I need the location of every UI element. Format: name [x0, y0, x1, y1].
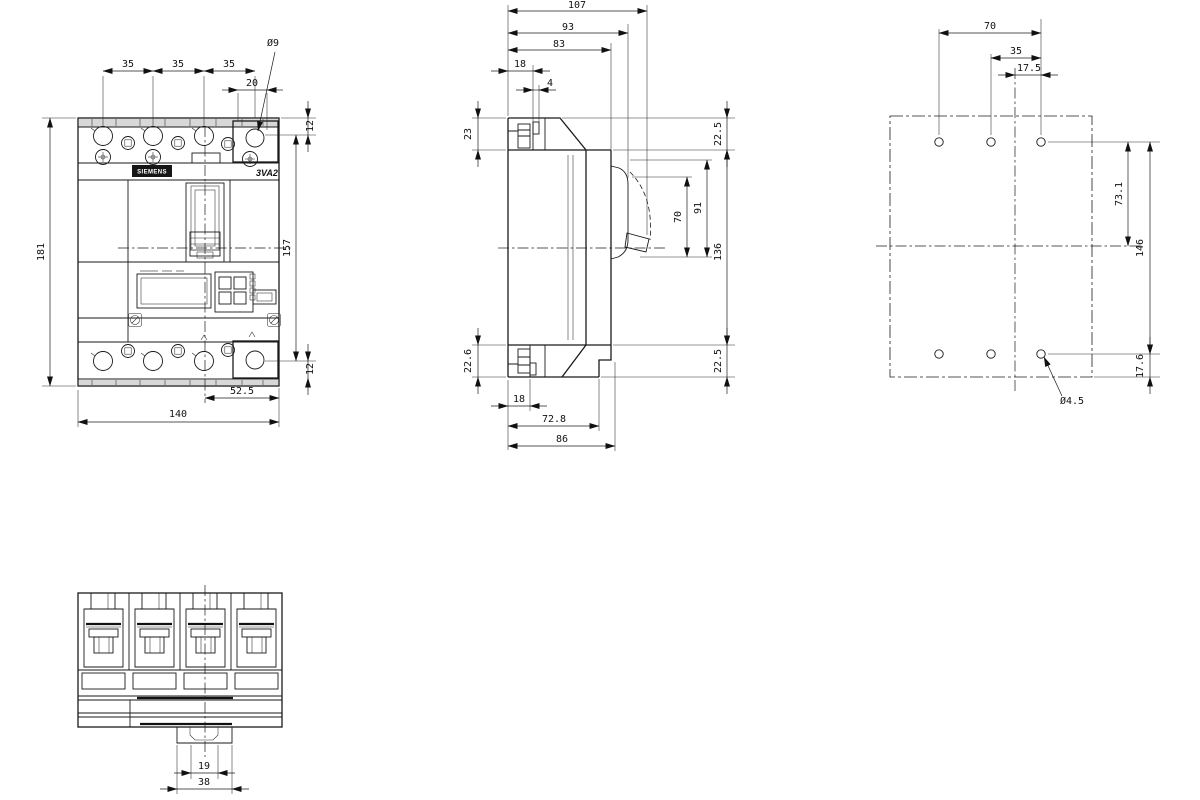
- pole-module-3: [184, 593, 227, 689]
- front-dim-lines: [50, 52, 308, 422]
- side-view: 107 93 83 18 4 23 22.5 91 70 136 22.5 22…: [463, 0, 735, 451]
- etu-connector: [253, 290, 276, 304]
- etu-button: [234, 277, 246, 289]
- dim-pole-pitch-2: 35: [172, 59, 184, 70]
- dim-mounting-height: 136: [713, 243, 724, 261]
- terminal-hole-1: [91, 127, 113, 146]
- drill-holes: [935, 138, 1045, 358]
- dim-drill-hole-dia: Ø4.5: [1060, 395, 1084, 407]
- cover-screw-icon: [146, 150, 161, 165]
- drilling-plan-view: 70 35 17.5 73.1 146 17.6 Ø4.5: [876, 19, 1160, 407]
- dim-overall-width: 140: [169, 409, 187, 420]
- drill-extension-lines: [939, 19, 1160, 377]
- technical-drawing-page: SIEMENS 3VA2: [0, 0, 1200, 800]
- dim-hole-to-edge: 20: [246, 78, 258, 89]
- front-body-outline: [78, 118, 279, 386]
- right-terminal-box-bottom: [233, 341, 278, 378]
- dim-bracket-tab: 4: [547, 78, 553, 89]
- front-cap-ticks: [92, 119, 263, 385]
- dim-handle-window: 70: [673, 211, 684, 223]
- front-bottom-terminals: [91, 332, 278, 378]
- etu-button: [219, 277, 231, 289]
- terminal-hole-5: [91, 352, 113, 371]
- dim-overall-height: 181: [36, 243, 47, 261]
- side-dimensions: 107 93 83 18 4 23 22.5 91 70 136 22.5 22…: [463, 0, 735, 451]
- front-top-terminals: [91, 121, 278, 167]
- dim-escutcheon-window: 91: [693, 202, 704, 214]
- dim-rail-notch: 19: [198, 761, 210, 772]
- drill-dim-lines: [939, 33, 1150, 396]
- front-extension-lines: [42, 76, 316, 427]
- bottom-view: 19 38: [78, 585, 282, 794]
- side-extension-lines: [472, 5, 735, 451]
- dim-pole-pitch-1: 35: [122, 59, 134, 70]
- side-body-outline: [498, 118, 668, 377]
- etu-button: [219, 292, 231, 304]
- drill-dimensions: 70 35 17.5 73.1 146 17.6 Ø4.5: [939, 19, 1160, 407]
- mounting-hole-top: [246, 129, 264, 147]
- dim-center-to-hole: 17.5: [1017, 63, 1041, 74]
- dim-top-edge-to-hole: 12: [305, 120, 316, 132]
- dimension-drawing-3va2: SIEMENS 3VA2: [0, 0, 1200, 800]
- dim-terminal-span: 157: [282, 239, 293, 257]
- dim-top-offset: 22.5: [713, 122, 724, 146]
- side-toggle-handle: [625, 233, 649, 252]
- dim-bracket-depth: 18: [514, 59, 526, 70]
- front-screw-icon: [129, 314, 142, 327]
- breaker-phantom-outline: [890, 116, 1092, 377]
- handle-swing-arc: [630, 172, 651, 240]
- etu-button: [234, 292, 246, 304]
- dim-terminal-hole-dia: Ø9: [267, 37, 279, 49]
- terminal-screw-icon: [172, 137, 185, 150]
- pole-module-1: [82, 593, 125, 689]
- terminal-hole-2: [141, 127, 163, 146]
- terminal-hole-7: [192, 352, 214, 371]
- etu-led-column: [250, 274, 255, 300]
- dim-rail-tab: 38: [198, 777, 210, 788]
- bottom-dimensions: 19 38: [160, 745, 249, 794]
- dim-hole-span: 70: [984, 21, 996, 32]
- terminal-screw-icon: [172, 345, 185, 358]
- dim-depth-overall: 107: [568, 0, 586, 11]
- dim-hole-pitch: 35: [1010, 46, 1022, 57]
- terminal-screw-icon: [122, 137, 135, 150]
- dim-row-span: 146: [1135, 239, 1146, 257]
- dim-overall-base-depth: 86: [556, 434, 568, 445]
- model-label: 3VA2: [256, 168, 278, 178]
- front-view: SIEMENS 3VA2: [36, 37, 316, 427]
- cover-screw-icon: [243, 152, 258, 167]
- dim-terminal-depth-bottom: 22.6: [463, 349, 474, 373]
- dim-pole-center-to-edge: 52.5: [230, 386, 254, 397]
- dim-base-depth: 72.8: [542, 414, 566, 425]
- dim-bottom-row-to-edge: 17.6: [1135, 354, 1146, 378]
- dim-terminal-depth-top: 23: [463, 128, 474, 140]
- dim-bottom-offset: 22.5: [713, 349, 724, 373]
- terminal-hole-3: [192, 127, 214, 146]
- label-slot: [192, 153, 220, 163]
- bottom-structure-lines: [78, 593, 282, 727]
- terminal-hole-6: [141, 352, 163, 371]
- terminal-screw-icon: [122, 345, 135, 358]
- pole-module-2: [133, 593, 176, 689]
- dim-foot-depth: 18: [513, 394, 525, 405]
- pole-module-4: [235, 593, 278, 689]
- dim-bottom-edge-to-hole: 12: [305, 363, 316, 375]
- dim-pole-pitch-3: 35: [223, 59, 235, 70]
- etu-display: [137, 274, 211, 308]
- brand-label: SIEMENS: [137, 170, 167, 176]
- cover-screw-icon: [96, 150, 111, 165]
- dim-top-row-to-center: 73.1: [1114, 182, 1125, 206]
- side-dim-lines: [478, 11, 727, 446]
- din-rail-tab: [177, 727, 232, 743]
- din-rail-notch: [190, 727, 218, 740]
- stamp-marks: [201, 332, 255, 340]
- mounting-hole-bottom: [246, 351, 264, 369]
- dim-depth-to-escutcheon: 93: [562, 22, 574, 33]
- dim-depth-to-cover: 83: [553, 39, 565, 50]
